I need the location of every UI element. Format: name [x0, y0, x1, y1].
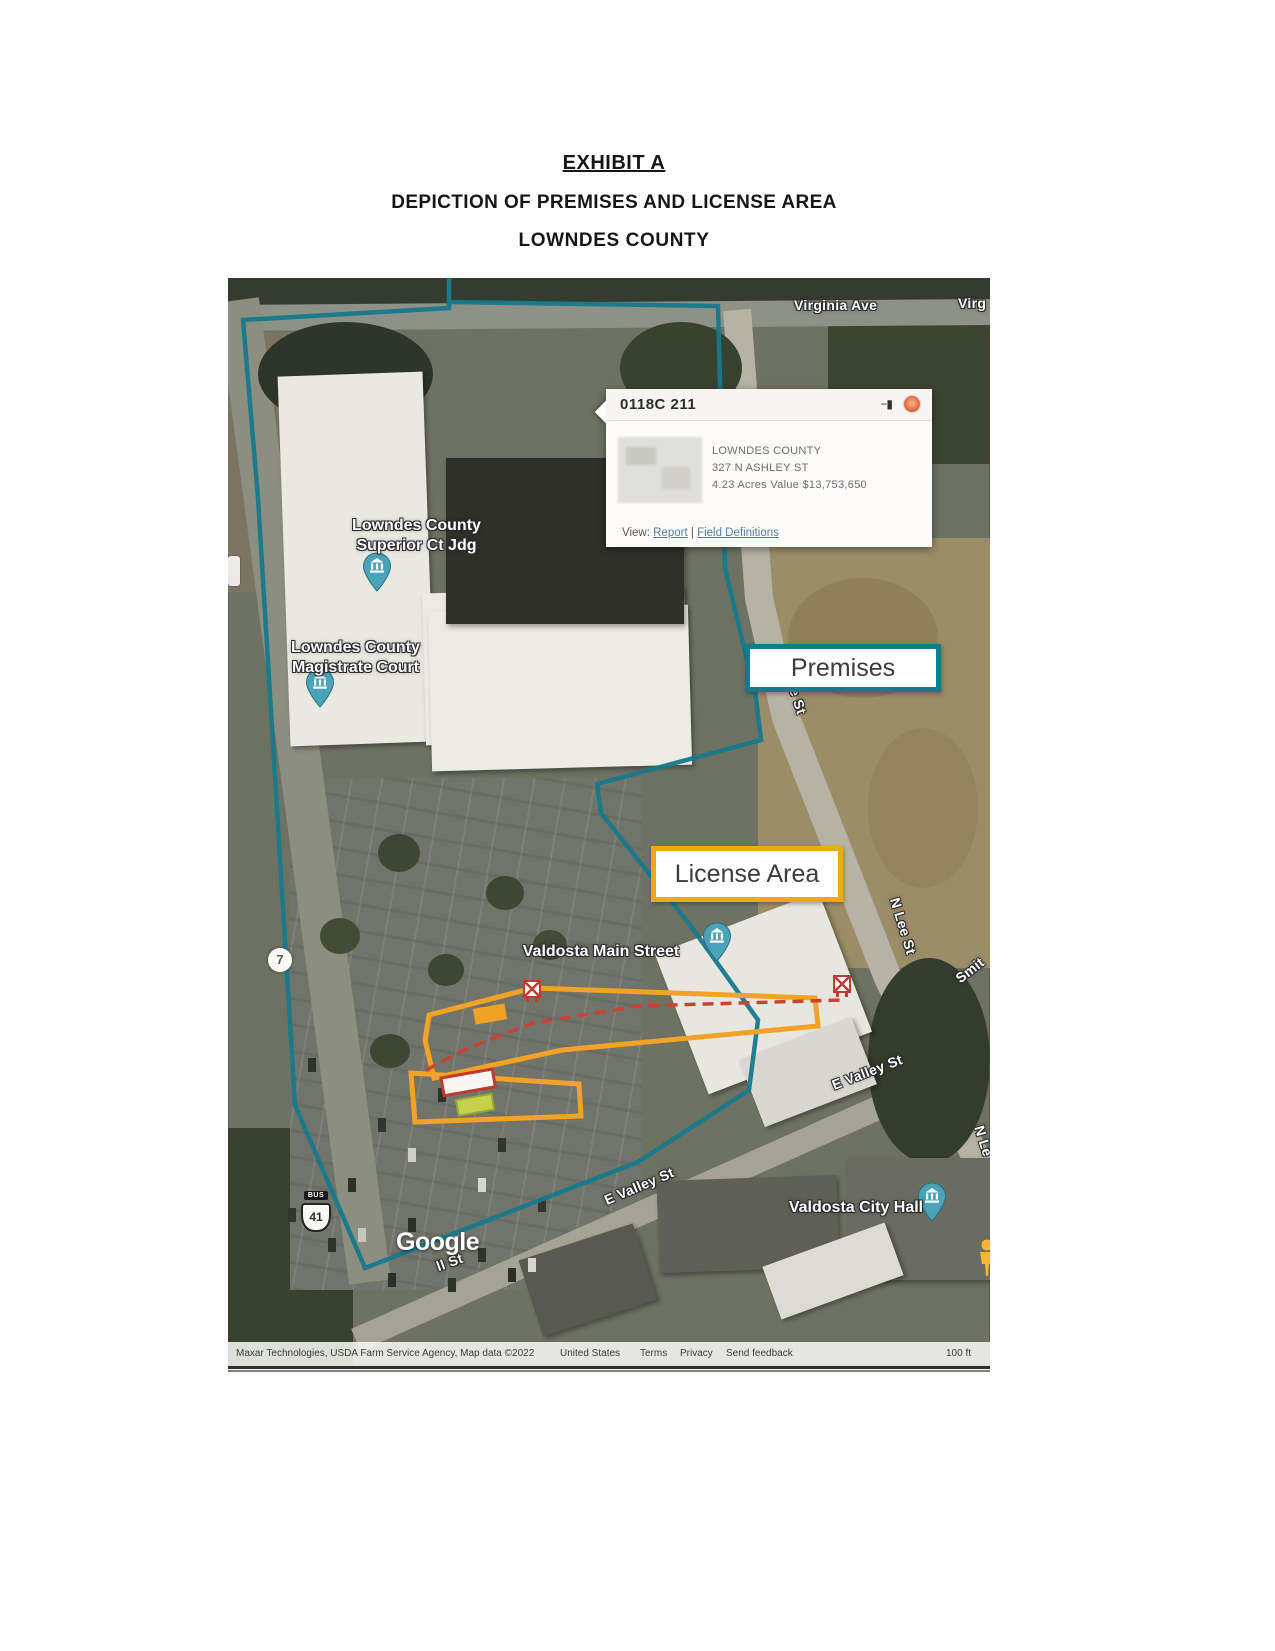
- parcel-id: 0118C 211: [620, 396, 696, 413]
- parcel-info-popup: 0118C 211 −▮ LOWNDES COUNTY 327 N ASHLEY…: [606, 389, 932, 547]
- map-credits: Maxar Technologies, USDA Farm Service Ag…: [236, 1348, 534, 1359]
- label-virginia-ave: Virginia Ave: [794, 297, 877, 313]
- map-pin-valdosta-main-street[interactable]: [702, 922, 732, 962]
- parcel-thumbnail: [618, 437, 702, 503]
- parcel-address: 327 N ASHLEY ST: [712, 460, 867, 477]
- license-area-callout: License Area: [651, 846, 843, 902]
- map-scale: 100 ft: [946, 1348, 971, 1359]
- barricade-icon: [524, 981, 540, 1002]
- scan-artifact-line: [228, 1370, 990, 1372]
- parcel-details: LOWNDES COUNTY 327 N ASHLEY ST 4.23 Acre…: [712, 443, 867, 494]
- parcel-owner: LOWNDES COUNTY: [712, 443, 867, 460]
- label-superior-court: Lowndes County Superior Ct Jdg: [324, 516, 509, 556]
- label-valdosta-city-hall: Valdosta City Hall: [776, 1198, 936, 1218]
- barricade-icon: [834, 976, 850, 997]
- view-label: View:: [622, 527, 650, 539]
- parcel-acres-value: 4.23 Acres Value $13,753,650: [712, 477, 867, 494]
- terms-link[interactable]: Terms: [640, 1348, 667, 1359]
- map-pin-superior-court[interactable]: [362, 552, 392, 592]
- pegman-icon[interactable]: [976, 1238, 990, 1278]
- minimize-pin-icon[interactable]: −▮: [880, 397, 892, 411]
- exhibit-county: LOWNDES COUNTY: [0, 230, 1228, 252]
- link-divider: |: [691, 527, 694, 539]
- map-region: United States: [560, 1348, 620, 1359]
- bus-banner: BUS: [304, 1191, 328, 1200]
- popup-footer: View: Report | Field Definitions: [622, 527, 779, 539]
- send-feedback-link[interactable]: Send feedback: [726, 1348, 793, 1359]
- premises-callout: Premises: [745, 644, 941, 692]
- route-7-shield: 7: [268, 948, 292, 972]
- google-logo[interactable]: Google: [396, 1228, 479, 1257]
- us-41-number: 41: [301, 1203, 331, 1232]
- exhibit-page: EXHIBIT A DEPICTION OF PREMISES AND LICE…: [0, 0, 1275, 1651]
- orange-marker-rect: [473, 1003, 507, 1024]
- green-area-rect: [456, 1094, 494, 1116]
- privacy-link[interactable]: Privacy: [680, 1348, 713, 1359]
- label-magistrate-court: Lowndes County Magistrate Court: [258, 638, 453, 678]
- report-link[interactable]: Report: [653, 527, 688, 539]
- title-block: EXHIBIT A DEPICTION OF PREMISES AND LICE…: [0, 152, 1228, 252]
- field-definitions-link[interactable]: Field Definitions: [697, 527, 779, 539]
- exhibit-heading: EXHIBIT A: [0, 152, 1228, 175]
- exhibit-subheading: DEPICTION OF PREMISES AND LICENSE AREA: [0, 192, 1228, 214]
- popup-header: 0118C 211 −▮: [606, 389, 932, 421]
- left-edge-partial-badge: [228, 556, 240, 586]
- us-41-bus-shield: BUS 41: [300, 1184, 332, 1232]
- map-attribution-bar: Maxar Technologies, USDA Farm Service Ag…: [228, 1342, 990, 1366]
- close-icon[interactable]: [904, 396, 920, 412]
- label-virginia-ave-partial: Virg: [958, 295, 986, 311]
- license-area-pocket: [411, 1073, 581, 1122]
- label-valdosta-main-street: Valdosta Main Street: [496, 942, 706, 962]
